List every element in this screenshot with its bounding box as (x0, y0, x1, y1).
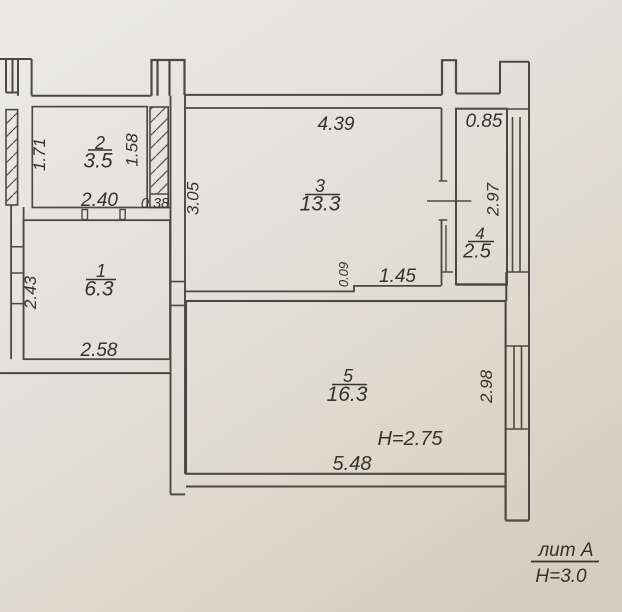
svg-text:2.97: 2.97 (484, 182, 503, 217)
svg-text:5.48: 5.48 (333, 453, 372, 475)
svg-text:2.43: 2.43 (21, 275, 40, 310)
svg-text:H=2.75: H=2.75 (377, 428, 443, 450)
svg-text:4.39: 4.39 (318, 114, 355, 135)
svg-text:1.45: 1.45 (379, 266, 416, 287)
svg-text:6.3: 6.3 (84, 278, 114, 301)
svg-text:13.3: 13.3 (300, 193, 341, 216)
svg-text:0.38: 0.38 (141, 196, 169, 212)
svg-text:1.71: 1.71 (30, 138, 49, 171)
svg-text:1.58: 1.58 (123, 133, 142, 167)
svg-text:2.98: 2.98 (477, 369, 496, 404)
svg-text:H=3.0: H=3.0 (535, 566, 587, 587)
svg-text:3.05: 3.05 (184, 181, 203, 215)
svg-text:лит А: лит А (537, 540, 593, 561)
svg-text:3.5: 3.5 (83, 150, 113, 173)
svg-text:2.5: 2.5 (462, 241, 492, 263)
svg-text:0.09: 0.09 (336, 262, 351, 287)
svg-text:2.40: 2.40 (80, 190, 118, 211)
svg-text:16.3: 16.3 (327, 383, 368, 406)
svg-text:2.58: 2.58 (80, 340, 118, 361)
svg-text:0.85: 0.85 (466, 111, 503, 132)
